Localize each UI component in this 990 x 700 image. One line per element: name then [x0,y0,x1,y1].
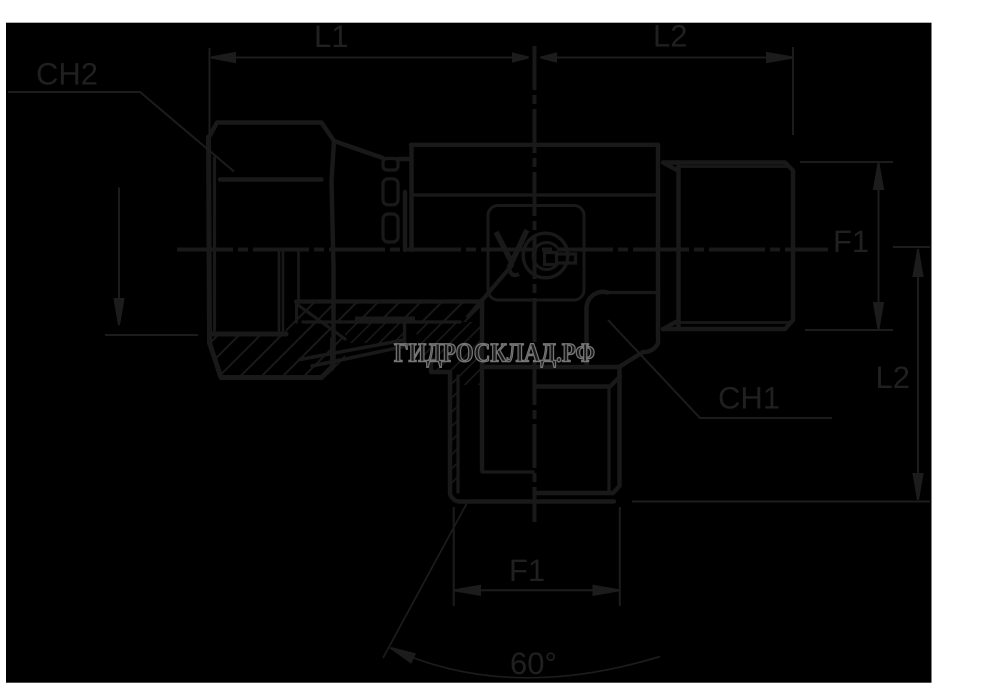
svg-text:60°: 60° [510,646,557,681]
svg-text:ГИДРОСКЛАД.РФ: ГИДРОСКЛАД.РФ [394,338,595,368]
svg-text:L2: L2 [876,360,910,395]
svg-text:F1: F1 [509,553,545,588]
svg-text:L2: L2 [653,19,687,54]
svg-text:L1: L1 [314,19,348,54]
svg-text:CH2: CH2 [36,57,98,92]
svg-text:F1: F1 [833,224,869,259]
svg-text:CH1: CH1 [718,381,780,416]
